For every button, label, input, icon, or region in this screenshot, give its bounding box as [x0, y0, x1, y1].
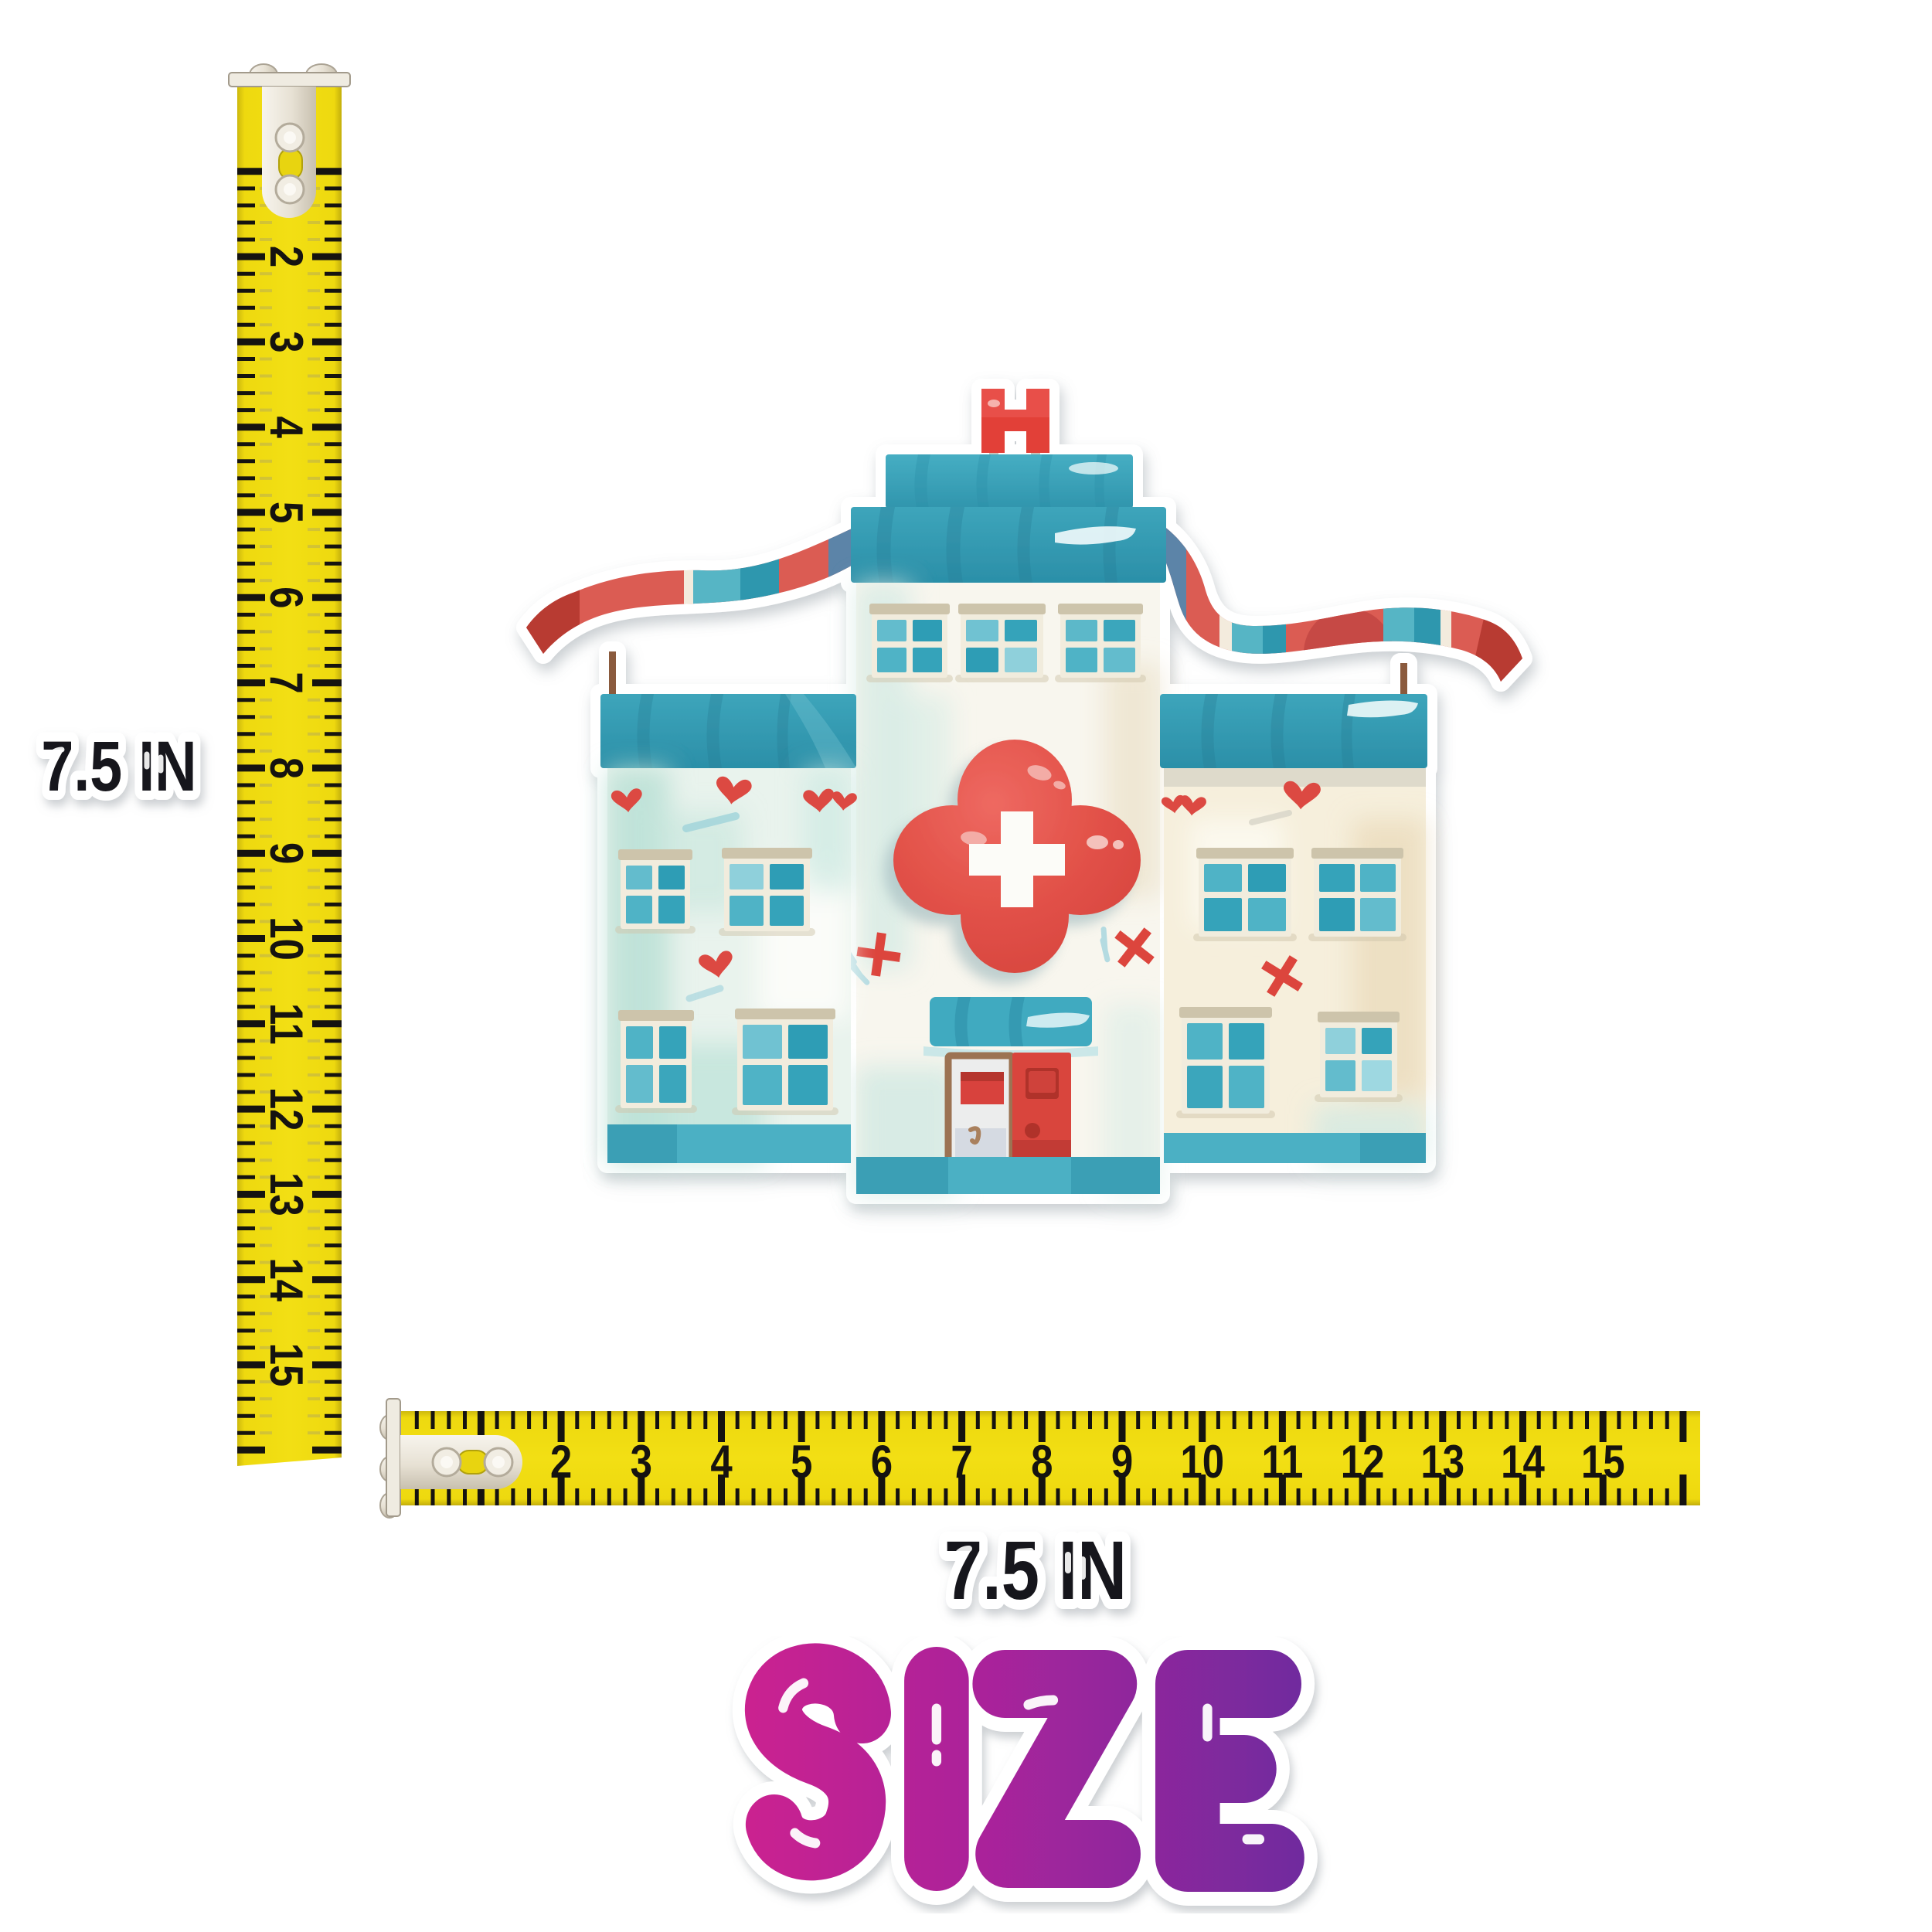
svg-text:3: 3 — [631, 1436, 652, 1488]
svg-text:13: 13 — [260, 1172, 312, 1216]
svg-text:7.5 IN: 7.5 IN — [944, 1524, 1127, 1617]
svg-text:14: 14 — [1501, 1436, 1545, 1488]
svg-text:4: 4 — [260, 417, 312, 438]
svg-text:6: 6 — [260, 587, 312, 608]
svg-text:13: 13 — [1420, 1436, 1464, 1488]
svg-text:5: 5 — [260, 502, 312, 523]
svg-text:7: 7 — [951, 1436, 972, 1488]
svg-text:11: 11 — [260, 1003, 312, 1045]
svg-text:9: 9 — [260, 842, 312, 864]
svg-text:7: 7 — [260, 672, 312, 693]
svg-text:12: 12 — [260, 1087, 312, 1131]
svg-text:10: 10 — [1180, 1436, 1224, 1488]
svg-text:15: 15 — [1581, 1436, 1625, 1488]
svg-text:8: 8 — [260, 757, 312, 779]
svg-text:7.5 IN: 7.5 IN — [41, 726, 196, 806]
svg-text:10: 10 — [260, 917, 312, 961]
svg-text:14: 14 — [260, 1257, 312, 1301]
svg-text:6: 6 — [871, 1436, 893, 1488]
svg-text:4: 4 — [710, 1436, 732, 1488]
svg-text:2: 2 — [260, 246, 312, 267]
svg-text:5: 5 — [791, 1436, 812, 1488]
svg-text:2: 2 — [550, 1436, 572, 1488]
svg-text:3: 3 — [260, 331, 312, 352]
svg-text:11: 11 — [1261, 1436, 1303, 1488]
svg-text:15: 15 — [260, 1343, 312, 1387]
svg-text:12: 12 — [1341, 1436, 1385, 1488]
svg-text:9: 9 — [1111, 1436, 1133, 1488]
svg-text:8: 8 — [1031, 1436, 1053, 1488]
